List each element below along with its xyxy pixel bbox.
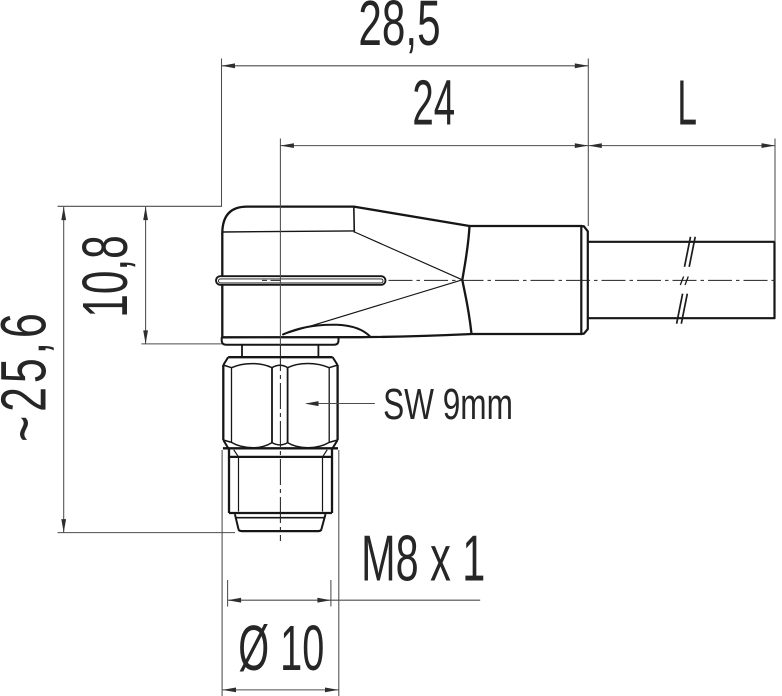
svg-text:M8 x 1: M8 x 1	[361, 522, 485, 595]
svg-text:~25,6: ~25,6	[0, 309, 60, 442]
svg-text:SW 9mm: SW 9mm	[383, 381, 513, 429]
svg-text:Ø 10: Ø 10	[238, 614, 324, 685]
svg-text:L: L	[677, 66, 697, 138]
svg-text:24: 24	[412, 68, 455, 140]
svg-text:28,5: 28,5	[358, 0, 440, 59]
svg-text:10,8: 10,8	[69, 235, 141, 317]
